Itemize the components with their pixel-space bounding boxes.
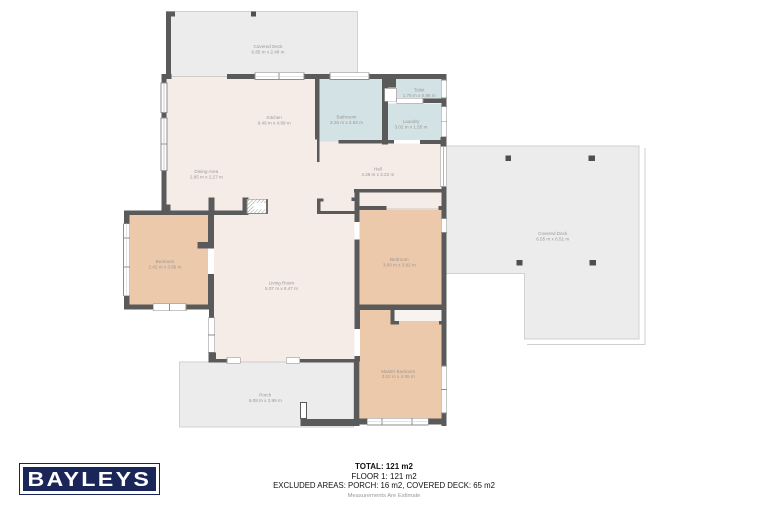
svg-text:Covered Deck: Covered Deck: [538, 231, 568, 236]
svg-text:3.26 m x 2.93 m: 3.26 m x 2.93 m: [330, 120, 363, 125]
svg-text:Kitchen: Kitchen: [267, 115, 283, 120]
svg-text:Master Bedroom: Master Bedroom: [381, 369, 415, 374]
svg-text:2.95 m x 2.27 m: 2.95 m x 2.27 m: [190, 175, 223, 180]
svg-text:Dining Area: Dining Area: [194, 169, 218, 174]
svg-text:6.55 m x 6.51 m: 6.55 m x 6.51 m: [536, 236, 569, 241]
svg-text:1.76 m x 0.86 m: 1.76 m x 0.86 m: [403, 93, 436, 98]
svg-text:4.39 m x 2.22 m: 4.39 m x 2.22 m: [361, 172, 394, 177]
svg-text:Bedroom: Bedroom: [390, 257, 409, 262]
svg-text:5.07 m x 6.47 m: 5.07 m x 6.47 m: [265, 286, 298, 291]
svg-text:Hall: Hall: [374, 166, 382, 171]
svg-text:Bedroom: Bedroom: [156, 259, 175, 264]
svg-text:6.08 m x 2.99 m: 6.08 m x 2.99 m: [249, 398, 282, 403]
svg-text:Toilet: Toilet: [414, 88, 425, 93]
svg-text:Bathroom: Bathroom: [337, 115, 357, 120]
svg-text:9.46 m x 4.89 m: 9.46 m x 4.89 m: [258, 120, 291, 125]
svg-text:3.00 m x 3.92 m: 3.00 m x 3.92 m: [383, 262, 416, 267]
svg-text:Porch: Porch: [259, 393, 271, 398]
svg-text:6.85 m x 2.48 m: 6.85 m x 2.48 m: [252, 50, 285, 55]
svg-text:3.02 m x 4.55 m: 3.02 m x 4.55 m: [382, 374, 415, 379]
svg-text:Laundry: Laundry: [403, 119, 420, 124]
svg-text:2.42 m x 3.66 m: 2.42 m x 3.66 m: [149, 265, 182, 270]
svg-text:Living Room: Living Room: [269, 280, 295, 285]
svg-text:3.02 m x 1.55 m: 3.02 m x 1.55 m: [395, 125, 428, 130]
svg-text:Covered Deck: Covered Deck: [253, 44, 283, 49]
